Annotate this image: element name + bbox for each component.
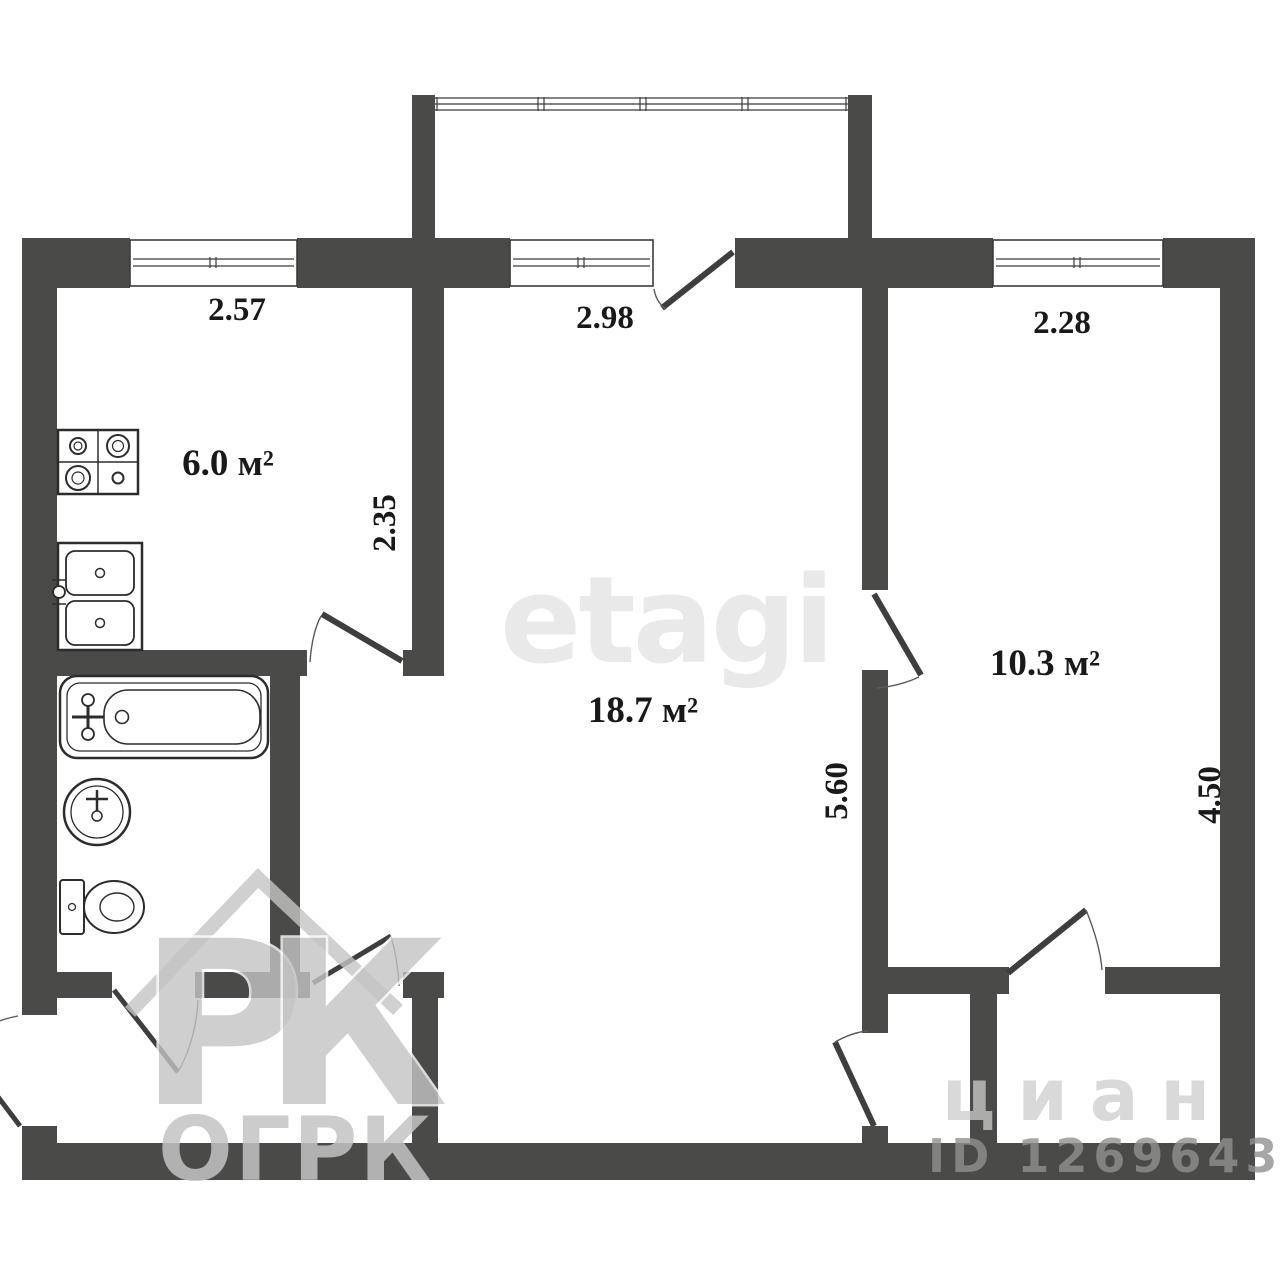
ogrk-text: ОГРК (158, 1098, 433, 1201)
kitchen-door-icon (310, 614, 402, 662)
wall-divider-mid (862, 670, 888, 1033)
cian-watermark: циан (942, 1053, 1232, 1137)
closet-door-icon (1008, 910, 1102, 973)
living-room-area-label: 18.7 м² (588, 690, 698, 731)
bathtub-icon (60, 676, 268, 758)
room-window-icon (993, 240, 1163, 286)
wall-divider-top (862, 288, 888, 590)
wall-kitchen-bottom (57, 650, 307, 676)
wall-divider-stub (862, 1126, 888, 1146)
dim-living-width: 2.98 (576, 300, 634, 336)
ogrk-logo: Р К ОГРК (130, 878, 448, 1201)
washbasin-icon (64, 779, 130, 845)
listing-id-watermark: ID 12696433 (928, 1129, 1280, 1183)
wall-closet-top-right (1105, 967, 1220, 994)
kitchen-window-icon (130, 240, 297, 286)
toilet-icon (60, 880, 144, 934)
floor-plan-drawing: etagi 2.57 2.98 2.28 2.35 5.60 4.50 6.0 … (0, 0, 1280, 1280)
wall-living-left (412, 288, 444, 650)
kitchen-sink-icon (52, 543, 142, 650)
wall-outer-left (22, 238, 57, 1015)
fixtures (52, 430, 268, 934)
kitchen-area-label: 6.0 м² (182, 443, 274, 484)
dim-living-height: 5.60 (819, 762, 855, 820)
windows (130, 96, 1163, 286)
entrance-door-icon (0, 1016, 20, 1126)
balcony-door-icon (654, 252, 733, 309)
living-room-window-icon (510, 240, 653, 286)
wall-closet-top-left (888, 967, 1009, 994)
room-area-label: 10.3 м² (990, 643, 1100, 684)
etagi-watermark: etagi (500, 552, 832, 691)
wall-kitchen-door-stub (403, 650, 444, 676)
wall-balcony-right (848, 95, 872, 240)
wall-outer-top-mid (297, 238, 510, 288)
stove-icon (58, 430, 138, 494)
dim-kitchen-width: 2.57 (208, 292, 266, 328)
wall-balcony-left (412, 95, 435, 240)
wall-bathroom-bottom-a (57, 972, 112, 998)
wall-outer-right (1220, 238, 1255, 1180)
living-room-closet-door-icon (835, 1031, 874, 1126)
balcony-glazing-icon (435, 96, 848, 112)
watermarks: etagi (500, 552, 832, 691)
dim-room-height: 4.50 (1192, 766, 1228, 824)
wall-outer-top-right-of-balcony (735, 238, 993, 288)
floor-plan: etagi 2.57 2.98 2.28 2.35 5.60 4.50 6.0 … (0, 0, 1280, 1280)
dim-kitchen-depth: 2.35 (367, 494, 403, 552)
dim-room-width: 2.28 (1033, 305, 1091, 341)
